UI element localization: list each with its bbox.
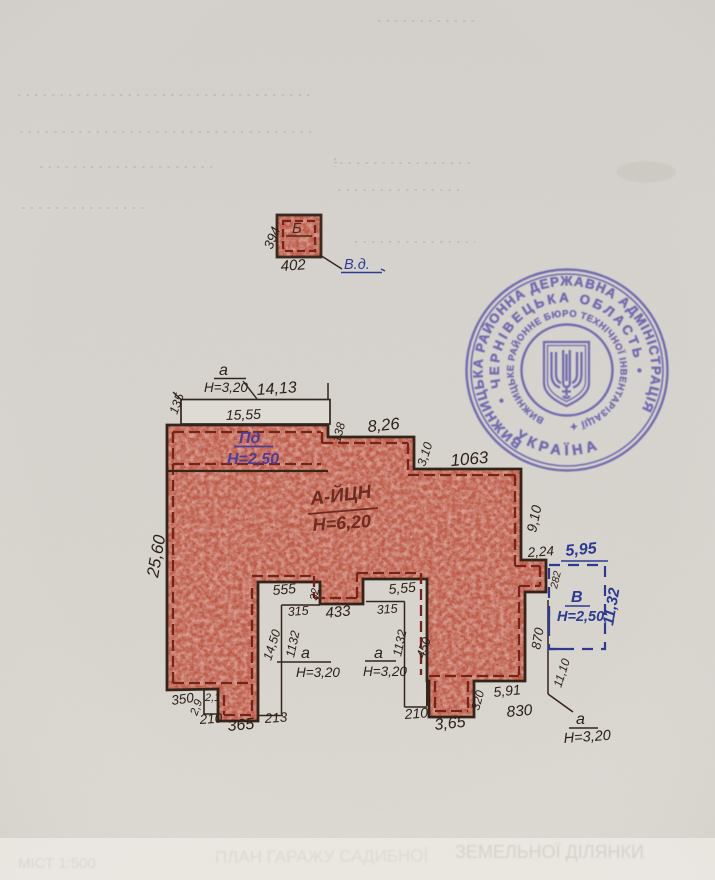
svg-text:365: 365 (227, 716, 255, 735)
svg-text:8,26: 8,26 (367, 415, 402, 436)
svg-text:а: а (301, 645, 310, 662)
svg-text:Н=3,20: Н=3,20 (296, 665, 340, 680)
svg-text:5,55: 5,55 (388, 579, 417, 597)
svg-text:3,65: 3,65 (434, 714, 467, 734)
svg-text:Н=3,20: Н=3,20 (204, 380, 248, 395)
svg-text:Н=6,20: Н=6,20 (312, 511, 372, 535)
svg-text:555: 555 (272, 580, 297, 598)
svg-text:Б: Б (292, 220, 302, 237)
svg-text:МІСТ 1:500: МІСТ 1:500 (18, 855, 96, 872)
svg-text:ЗЕМЕЛЬНОЇ ДІЛЯНКИ: ЗЕМЕЛЬНОЇ ДІЛЯНКИ (455, 842, 644, 862)
svg-text:402: 402 (280, 256, 307, 275)
svg-text:315: 315 (287, 604, 309, 619)
svg-text:433: 433 (325, 602, 352, 622)
svg-text:Н=2,50: Н=2,50 (557, 609, 604, 625)
svg-text:Пд: Пд (239, 430, 261, 447)
svg-text:315: 315 (376, 602, 398, 617)
svg-text:213: 213 (263, 709, 288, 726)
svg-text:32: 32 (308, 587, 322, 601)
svg-text:а: а (219, 362, 228, 379)
svg-text:14,13: 14,13 (256, 379, 297, 399)
svg-text:5,95: 5,95 (565, 540, 599, 560)
svg-text:Н=3,20: Н=3,20 (563, 728, 611, 747)
svg-text:830: 830 (506, 702, 534, 721)
svg-text:ПЛАН ГАРАЖУ САДИБНОЇ: ПЛАН ГАРАЖУ САДИБНОЇ (215, 846, 429, 867)
svg-text:Н=2,20: Н=2,20 (288, 240, 317, 250)
svg-text:2,24: 2,24 (526, 543, 554, 560)
svg-text:2,1: 2,1 (204, 692, 220, 704)
svg-text:Н=2,50: Н=2,50 (227, 451, 279, 468)
svg-text:210: 210 (403, 704, 429, 722)
svg-text:В: В (571, 589, 583, 606)
svg-text:1063: 1063 (450, 448, 490, 470)
svg-text:5,91: 5,91 (493, 681, 522, 700)
svg-text:а: а (576, 711, 585, 728)
svg-text:а: а (374, 645, 383, 662)
svg-text:В.д.: В.д. (344, 257, 370, 273)
svg-text:210: 210 (198, 710, 223, 727)
svg-text:Н=3,20: Н=3,20 (363, 664, 407, 679)
svg-text:15,55: 15,55 (226, 406, 262, 423)
